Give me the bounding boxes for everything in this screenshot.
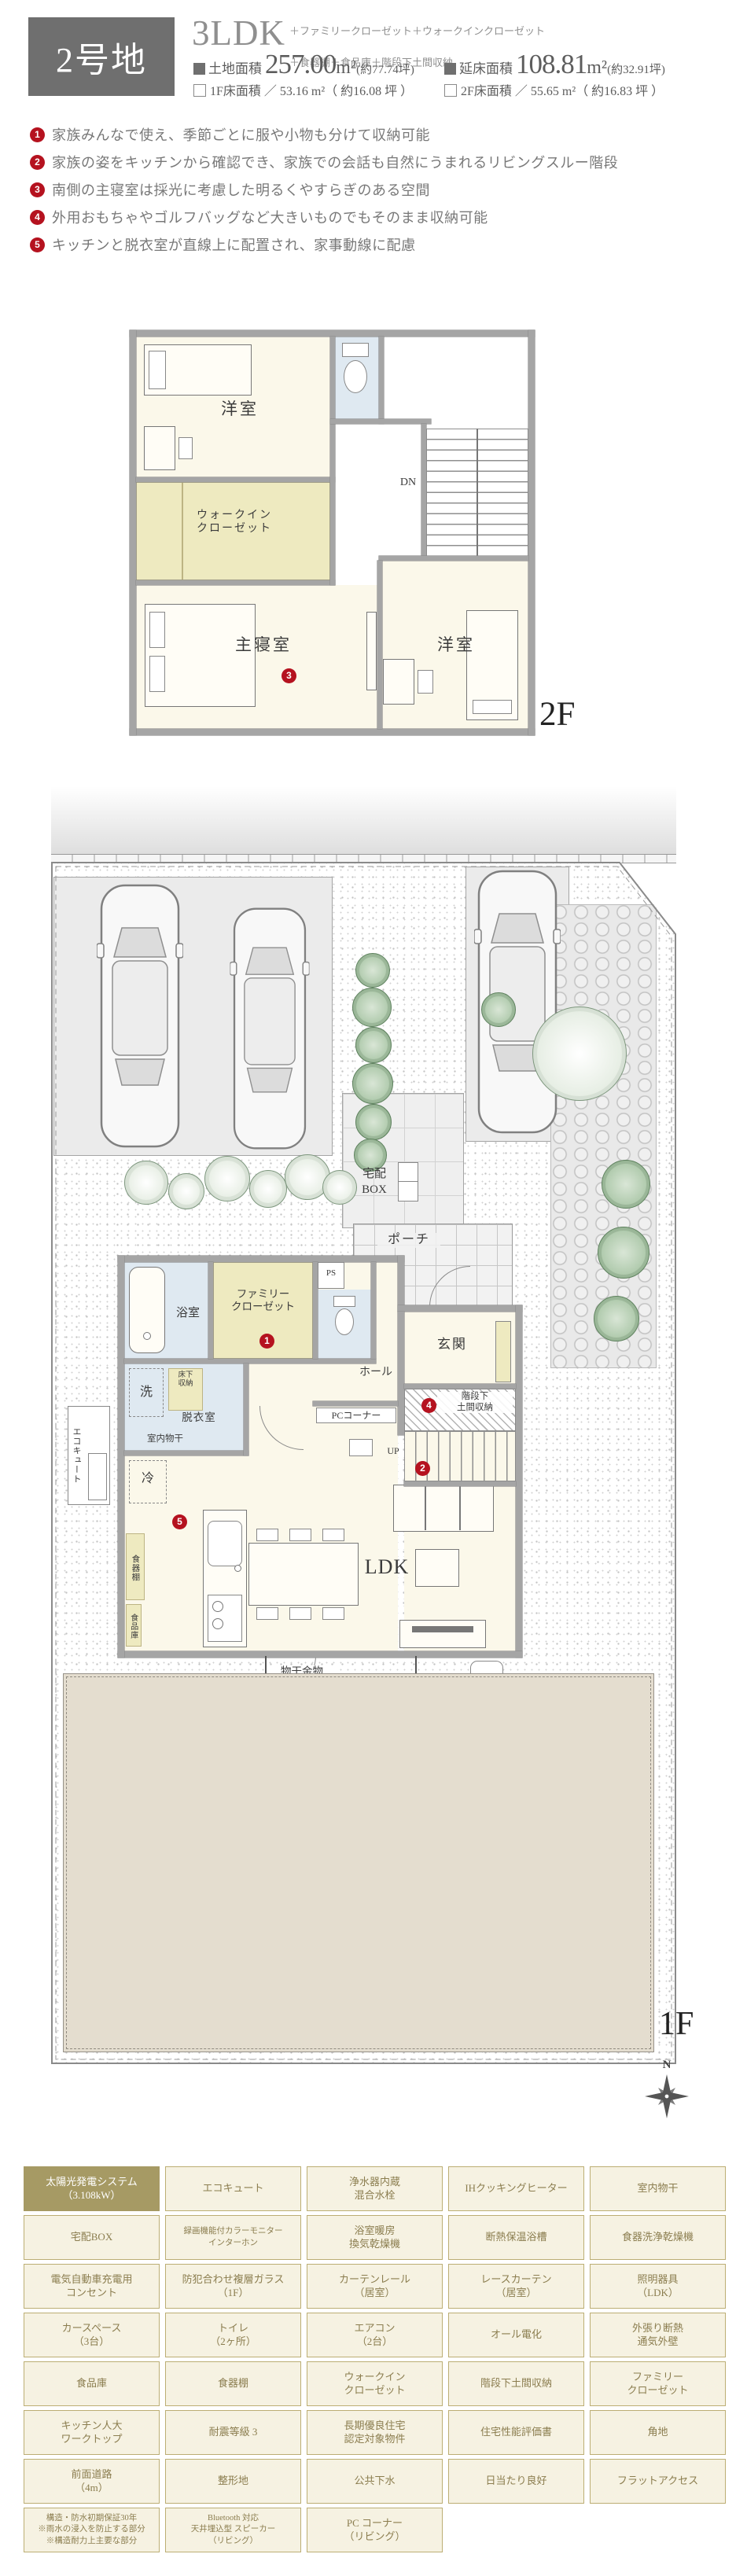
flyer-page: 2号地 3LDK ＋ファミリークローゼット＋ウォークインクローゼット ＋食器棚＋…	[0, 0, 747, 2576]
equipment-cell: 構造・防水初期保証30年 ※雨水の浸入を防止する部分 ※構造耐力上主要な部分	[24, 2508, 160, 2552]
wall	[208, 1262, 213, 1359]
wall	[124, 1451, 248, 1455]
desk	[144, 426, 175, 470]
indoor-drying-label: 室内物干	[132, 1434, 198, 1445]
land-area-unit: m²	[336, 57, 356, 78]
feature-number-badge: 4	[30, 210, 45, 225]
total-floor-label: 延床面積	[459, 61, 513, 76]
plan-marker-3: 3	[282, 668, 296, 683]
sofa	[393, 1485, 494, 1532]
equipment-cell: トイレ （2ヶ所）	[165, 2313, 301, 2357]
open-square-icon	[193, 84, 206, 97]
toilet-tank	[342, 343, 369, 357]
sofa-divider	[459, 1486, 461, 1530]
faucet	[234, 1565, 241, 1572]
plan-marker-4: 4	[421, 1398, 436, 1413]
equipment-cell: 浄水器内蔵 混合水栓	[307, 2166, 443, 2211]
wall	[377, 561, 382, 729]
feature-number-badge: 3	[30, 182, 45, 197]
equipment-cell: カーテンレール （居室）	[307, 2264, 443, 2309]
equipment-cell: 録画機能付カラーモニター インターホン	[165, 2215, 301, 2260]
lot-number-text: 2号地	[56, 31, 147, 82]
equipment-cell: 防犯合わせ複層ガラス （1F）	[165, 2264, 301, 2309]
wall	[330, 337, 335, 585]
cupboard-label: 食器棚	[130, 1537, 139, 1599]
equipment-cell: フラットアクセス	[590, 2459, 726, 2504]
toilet-bowl-icon	[335, 1308, 354, 1335]
delivery-box	[398, 1162, 418, 1202]
pillow	[149, 656, 165, 692]
equipment-cell: カースペース （3台）	[24, 2313, 160, 2357]
equipment-cell: 前面道路 （4m）	[24, 2459, 160, 2504]
garden-border	[66, 1676, 651, 2049]
plan-options-line1: ＋ファミリークローゼット＋ウォークインクローゼット	[289, 25, 545, 37]
stair-storage-label: 階段下 土間収納	[437, 1392, 513, 1413]
room-label-family-closet: ファミリー クローゼット	[217, 1288, 309, 1313]
floor-label-1f: 1F	[659, 2005, 722, 2044]
chair	[322, 1529, 344, 1541]
equipment-table: 太陽光発電システム （3.108kW） エコキュート 浄水器内蔵 混合水栓 IH…	[24, 2166, 726, 2552]
feature-number-badge: 1	[30, 127, 45, 142]
road	[51, 786, 676, 854]
dining-table	[248, 1543, 359, 1606]
wall	[404, 1384, 516, 1389]
wall	[379, 556, 528, 561]
toilet-bowl-icon	[344, 360, 367, 393]
chair	[256, 1529, 278, 1541]
equipment-cell: レースカーテン （居室）	[448, 2264, 584, 2309]
equipment-cell: 耐震等級 3	[165, 2410, 301, 2455]
equipment-cell: 照明器具 （LDK）	[590, 2264, 726, 2309]
equipment-cell: 外張り断熱 通気外壁	[590, 2313, 726, 2357]
equipment-cell: 電気自動車充電用 コンセント	[24, 2264, 160, 2309]
wall	[528, 330, 535, 735]
equipment-cell: 食器洗浄乾燥機	[590, 2215, 726, 2260]
plan-marker-1: 1	[259, 1334, 274, 1349]
chair	[289, 1529, 311, 1541]
hall-label: ホール	[352, 1367, 399, 1380]
wall	[130, 330, 136, 735]
equipment-cell: 食品庫	[24, 2361, 160, 2406]
pc-corner-label: PCコーナー	[316, 1410, 396, 1421]
feature-number-badge: 2	[30, 155, 45, 170]
chair	[418, 670, 433, 694]
coffee-table	[415, 1549, 459, 1587]
wall	[118, 1651, 522, 1658]
total-floor-unit: m²	[587, 57, 607, 78]
equipment-cell: 浴室暖房 換気乾燥機	[307, 2215, 443, 2260]
total-floor-value: 108.81	[516, 49, 587, 79]
wall	[371, 1262, 376, 1359]
feature-text: 家族の姿をキッチンから確認でき、家族での会話も自然にうまれるリビングスルー階段	[52, 152, 618, 172]
stair-divider	[477, 429, 478, 558]
compass-rose: N	[643, 2059, 690, 2123]
kitchen-sink	[208, 1521, 242, 1566]
equipment-cell: 角地	[590, 2410, 726, 2455]
wall	[398, 1305, 522, 1312]
floor1-area-line: 1F床面積 ／ 53.16 m²（ 約16.08 坪 ）	[193, 80, 413, 99]
total-floor-area: 延床面積 108.81m²(約32.91坪)	[444, 49, 665, 80]
land-area-value: 257.00	[265, 49, 336, 79]
tv-screen	[412, 1626, 473, 1632]
equipment-cell: 長期優良住宅 認定対象物件	[307, 2410, 443, 2455]
wall	[244, 1363, 248, 1455]
floor1-area-text: 1F床面積 ／ 53.16 m²（ 約16.08 坪 ）	[210, 85, 413, 98]
filled-square-icon	[444, 63, 456, 75]
ldk-label: LDK	[355, 1555, 418, 1580]
room-label-bath: 浴室	[168, 1307, 208, 1321]
wall	[130, 330, 535, 337]
equipment-cell: 階段下土間収納	[448, 2361, 584, 2406]
equipment-cell: IHクッキングヒーター	[448, 2166, 584, 2211]
wall	[313, 1401, 398, 1406]
equipment-cell: 太陽光発電システム （3.108kW）	[24, 2166, 160, 2211]
shoe-cabinet	[495, 1321, 511, 1382]
chair	[289, 1607, 311, 1620]
land-area-tsubo: (約77.74坪)	[356, 64, 414, 76]
equipment-cell: エコキュート	[165, 2166, 301, 2211]
plan-marker-2: 2	[415, 1461, 430, 1476]
equipment-cell: 断熱保温浴槽	[448, 2215, 584, 2260]
feature-item: 5 キッチンと脱衣室が直線上に配置され、家事動線に配慮	[30, 234, 722, 255]
wall	[124, 1359, 376, 1363]
compass-north-label: N	[643, 2059, 690, 2073]
feature-text: 南側の主寝室は採光に考慮した明るくやすらぎのある空間	[52, 179, 430, 200]
ecocute-label: エコキュート	[71, 1412, 81, 1499]
room-label-western-bottom: 洋室	[413, 635, 499, 655]
wall	[379, 337, 384, 424]
ps-label: PS	[319, 1268, 343, 1279]
equipment-cell: PC コーナー （リビング）	[307, 2508, 443, 2552]
wall	[118, 1256, 404, 1262]
land-area: 土地面積 257.00m²(約77.74坪)	[193, 49, 414, 80]
total-floor-tsubo: (約32.91坪)	[607, 64, 665, 76]
porch-label: ポーチ	[377, 1233, 440, 1248]
feature-text: 外用おもちゃやゴルフバッグなど大きいものでもそのまま収納可能	[52, 207, 488, 227]
fridge-label: 冷	[135, 1472, 160, 1487]
wall	[130, 729, 535, 735]
wall	[118, 1256, 124, 1658]
equipment-cell: 室内物干	[590, 2166, 726, 2211]
wall	[421, 424, 426, 558]
wall	[330, 419, 431, 424]
compass-star-icon	[643, 2073, 690, 2120]
pillow	[473, 700, 512, 714]
chair	[178, 437, 193, 459]
floor2-area-text: 2F床面積 ／ 55.65 m²（ 約16.83 坪 ）	[461, 85, 664, 98]
plan-marker-5: 5	[172, 1514, 187, 1529]
delivery-box-label: 宅配 BOX	[352, 1167, 396, 1198]
filled-square-icon	[193, 63, 205, 75]
pantry-label: 食品庫	[128, 1607, 138, 1645]
wall	[516, 1305, 522, 1658]
equipment-cell: 宅配BOX	[24, 2215, 160, 2260]
feature-item: 4 外用おもちゃやゴルフバッグなど大きいものでもそのまま収納可能	[30, 207, 722, 227]
lot-number-badge: 2号地	[28, 17, 175, 96]
toilet-tank	[333, 1296, 355, 1307]
equipment-cell: ファミリー クローゼット	[590, 2361, 726, 2406]
equipment-cell: 日当たり良好	[448, 2459, 584, 2504]
equipment-cell: 住宅性能評価書	[448, 2410, 584, 2455]
pillow	[149, 351, 166, 389]
feature-number-badge: 5	[30, 237, 45, 252]
open-square-icon	[444, 84, 457, 97]
equipment-cell: ウォークイン クローゼット	[307, 2361, 443, 2406]
tv-board	[366, 612, 377, 690]
room-label-western-top: 洋室	[204, 399, 275, 419]
feature-text: 家族みんなで使え、季節ごとに服や小物も分けて収納可能	[52, 124, 430, 145]
equipment-cell: 食器棚	[165, 2361, 301, 2406]
garden	[63, 1673, 654, 2052]
feature-list: 1 家族みんなで使え、季節ごとに服や小物も分けて収納可能 2 家族の姿をキッチン…	[30, 124, 722, 262]
bath-drain	[143, 1332, 151, 1340]
burner	[212, 1601, 223, 1612]
equipment-cell: 整形地	[165, 2459, 301, 2504]
desk	[383, 659, 414, 705]
room-label-walkin-closet: ウォークイン クローゼット	[167, 510, 301, 535]
floor-plan-2f: 洋室 ウォークイン クローゼット 主寝室 洋室 DN 3	[130, 330, 535, 735]
feature-item: 3 南側の主寝室は採光に考慮した明るくやすらぎのある空間	[30, 179, 722, 200]
stool	[349, 1439, 373, 1456]
stairs-up-label: UP	[382, 1445, 404, 1456]
sofa-divider	[425, 1486, 426, 1530]
floor2-area-line: 2F床面積 ／ 55.65 m²（ 約16.83 坪 ）	[444, 80, 664, 99]
chair	[322, 1607, 344, 1620]
bathtub	[129, 1267, 165, 1353]
equipment-cell: キッチン人大 ワークトップ	[24, 2410, 160, 2455]
wall	[313, 1262, 318, 1359]
wash-label: 洗	[132, 1386, 160, 1400]
equipment-cell: Bluetooth 対応 天井埋込型 スピーカー （リビング）	[165, 2508, 301, 2552]
stove	[208, 1595, 242, 1642]
tv-board	[399, 1620, 486, 1648]
wall	[398, 1256, 404, 1312]
chair	[256, 1607, 278, 1620]
stairs-dn-label: DN	[392, 477, 424, 490]
pillow	[149, 612, 165, 648]
room-label-datsuishitsu: 脱衣室	[165, 1411, 233, 1424]
room-label-master-bedroom: 主寝室	[208, 635, 318, 655]
wall	[136, 580, 335, 585]
delivery-box-divider	[398, 1181, 418, 1182]
room-label-genkan: 玄関	[425, 1337, 480, 1352]
burner	[212, 1618, 223, 1629]
equipment-cell: エアコン （2台）	[307, 2313, 443, 2357]
feature-text: キッチンと脱衣室が直線上に配置され、家事動線に配慮	[52, 234, 416, 255]
wall	[404, 1481, 516, 1486]
floor-storage-label: 床下 収納	[170, 1371, 201, 1389]
wall	[136, 477, 335, 482]
equipment-cell: オール電化	[448, 2313, 584, 2357]
land-area-label: 土地面積	[208, 61, 262, 76]
feature-item: 2 家族の姿をキッチンから確認でき、家族での会話も自然にうまれるリビングスルー階…	[30, 152, 722, 172]
ecocute-tank	[88, 1453, 107, 1500]
equipment-cell: 公共下水	[307, 2459, 443, 2504]
feature-item: 1 家族みんなで使え、季節ごとに服や小物も分けて収納可能	[30, 124, 722, 145]
floor-label-2f: 2F	[539, 695, 602, 735]
